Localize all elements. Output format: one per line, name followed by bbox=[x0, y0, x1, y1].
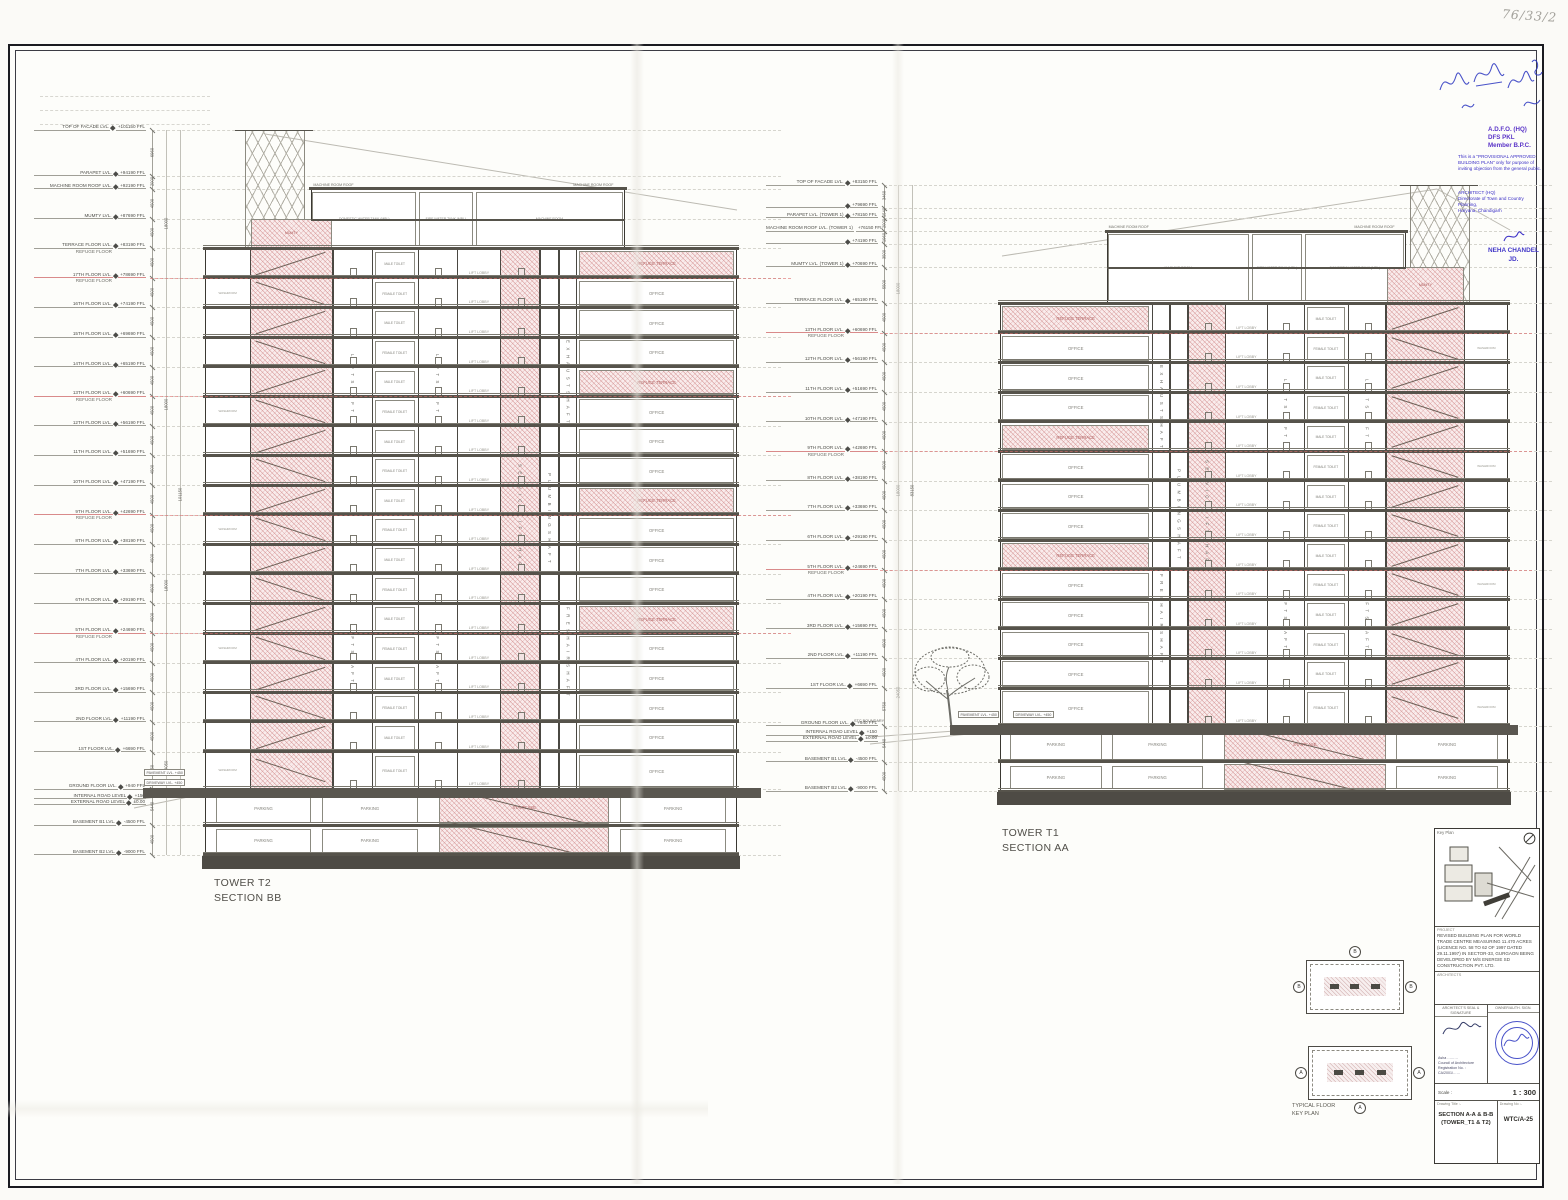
female-toilet-label: FEMALE TOILET bbox=[382, 469, 407, 473]
refuge-terrace-label: REFUGE TERRACE bbox=[1056, 316, 1095, 321]
level-marker bbox=[845, 446, 850, 451]
level-marker bbox=[845, 595, 850, 600]
approval-stamps: A.D.F.O. (HQ) DFS PKL Member B.P.C. This… bbox=[1436, 52, 1546, 292]
floor-slab bbox=[998, 598, 1510, 601]
level-line: TOP OF FACADE LVL.+83150 FFL bbox=[766, 179, 878, 186]
level-marker bbox=[117, 850, 122, 855]
office-cell: OFFICE bbox=[1002, 691, 1149, 725]
level-item: 3RD FLOOR LVL.+15690 FFL bbox=[34, 686, 146, 693]
parking-label: PARKING bbox=[254, 806, 273, 811]
office-label: OFFICE bbox=[1068, 583, 1083, 588]
floor-slab-line bbox=[203, 689, 739, 690]
pavement-label-t2: PAVEMENT LVL. +450 bbox=[144, 769, 185, 776]
level-item: 17TH FLOOR LVL.+78690 FFLREFUGE FLOOR bbox=[34, 272, 146, 284]
office-cell: OFFICE bbox=[579, 666, 734, 692]
level-item: 7TH FLOOR LVL.+33690 FFL bbox=[34, 568, 146, 575]
female-toilet-label: FEMALE TOILET bbox=[1314, 347, 1339, 351]
level-sublabel: REFUGE FLOOR bbox=[34, 634, 146, 639]
level-label: 13TH FLOOR LVL. bbox=[34, 390, 113, 397]
level-label: GROUND FLOOR LVL. bbox=[766, 720, 850, 727]
level-line: BASEMENT B1 LVL.-4500 FFL bbox=[34, 819, 146, 826]
lift-shaft-1: L I F T S H A F TL I F T S H A F T bbox=[1348, 303, 1386, 726]
toilet-cell: MALE TOILET bbox=[375, 548, 415, 572]
level-marker bbox=[113, 273, 118, 278]
level-label: 7TH FLOOR LVL. bbox=[766, 504, 845, 511]
level-item: TOP OF FACADE LVL.+83150 FFL bbox=[766, 179, 878, 186]
level-item: PARAPET LVL.+94190 FFL bbox=[34, 170, 146, 177]
refuge-terrace-label: REFUGE TERRACE bbox=[1056, 435, 1095, 440]
level-marker bbox=[846, 654, 851, 659]
caption-line: KEY PLAN bbox=[1292, 1110, 1335, 1118]
level-marker bbox=[115, 747, 120, 752]
office-cell: OFFICE bbox=[579, 547, 734, 573]
level-value: +33690 FFL bbox=[850, 504, 878, 511]
dim-value: 4500 bbox=[150, 368, 155, 394]
dim-value: 4500 bbox=[150, 427, 155, 453]
level-line: PARAPET LVL. (TOWER 1)+78150 FFL bbox=[766, 212, 878, 219]
floor-slab-line bbox=[998, 655, 1510, 656]
floor-slab-line bbox=[203, 630, 739, 631]
toilet-cell: FEMALE TOILET bbox=[1307, 337, 1345, 361]
refuge-terrace-label: REFUGE TERRACE bbox=[637, 617, 676, 622]
level-sublabel: REFUGE FLOOR bbox=[34, 515, 146, 520]
floor-slab-line bbox=[998, 359, 1510, 360]
floor-slab-line bbox=[998, 330, 1510, 331]
level-value: +87690 FFL bbox=[118, 213, 146, 220]
floor-slab bbox=[203, 720, 739, 723]
dim-value: 4500 bbox=[882, 660, 887, 686]
parking-label: PARKING bbox=[664, 806, 683, 811]
level-marker bbox=[845, 239, 850, 244]
dim-value: 4500 bbox=[150, 605, 155, 631]
level-line: MACHINE ROOM ROOF LVL. (TOWER 1)+76150 F… bbox=[766, 225, 878, 232]
level-line: GROUND FLOOR LVL.+940 FFL bbox=[34, 783, 146, 790]
level-value: +38190 FFL bbox=[850, 475, 878, 482]
floor-slab bbox=[998, 657, 1510, 660]
floor-slab-line bbox=[203, 600, 739, 601]
dim-value: 4500 bbox=[882, 393, 887, 419]
level-label: MUMTY LVL. bbox=[34, 213, 113, 220]
level-label: 2ND FLOOR LVL. bbox=[34, 716, 113, 723]
office-label: OFFICE bbox=[1068, 672, 1083, 677]
owner-sign-cell: OWNER/AUTH. SIGN. bbox=[1488, 1005, 1540, 1083]
level-value: +79690 FFL bbox=[850, 202, 878, 209]
dim-group-value: 18000 bbox=[896, 276, 901, 302]
typical-floor-plan bbox=[1306, 960, 1404, 1014]
dim-group-value: 18000 bbox=[896, 478, 901, 504]
toilet-cell: MALE TOILET bbox=[375, 607, 415, 631]
level-item: 5TH FLOOR LVL.+24690 FFLREFUGE FLOOR bbox=[34, 627, 146, 639]
level-item: +79690 FFL bbox=[766, 202, 878, 209]
female-toilet-label: FEMALE TOILET bbox=[382, 528, 407, 532]
level-marker bbox=[845, 298, 850, 303]
male-toilet-label: MALE TOILET bbox=[384, 380, 405, 384]
signatory-stamp: NEHA CHANDEL JD. bbox=[1488, 228, 1539, 264]
male-toilet-label: MALE TOILET bbox=[384, 677, 405, 681]
key-plan-map bbox=[1437, 839, 1537, 923]
toilet-cell: FEMALE TOILET bbox=[375, 400, 415, 424]
dim-value: 4500 bbox=[882, 423, 887, 449]
level-line: 3RD FLOOR LVL.+15690 FFL bbox=[766, 623, 878, 630]
refuge-terrace-label: REFUGE TERRACE bbox=[637, 261, 676, 266]
dim-value: 4500 bbox=[150, 309, 155, 335]
office-cell: OFFICE bbox=[1002, 395, 1149, 421]
dim-value: 4500 bbox=[150, 694, 155, 720]
refuge-level-line bbox=[880, 333, 1532, 334]
level-value: +92190 FFL bbox=[118, 183, 146, 190]
office-label: OFFICE bbox=[1068, 376, 1083, 381]
toilet-cell: MALE TOILET bbox=[1307, 307, 1345, 331]
dim-value: 4500 bbox=[150, 249, 155, 275]
exhaust-shaft: E X H A U S T S H A F TF R E S H A I R S… bbox=[559, 248, 578, 789]
plumbing-shaft: P L U M B I N G S H A F T bbox=[1170, 303, 1188, 726]
office-cell: OFFICE bbox=[579, 310, 734, 336]
level-line: 9TH FLOOR LVL.+42690 FFL bbox=[766, 445, 878, 452]
drawing-title-cell: Drawing Title :- SECTION A-A & B-B (TOWE… bbox=[1435, 1101, 1498, 1163]
level-label: 1ST FLOOR LVL. bbox=[766, 682, 847, 689]
parking-label: PARKING bbox=[361, 806, 380, 811]
level-line: 4TH FLOOR LVL.+20190 FFL bbox=[766, 593, 878, 600]
refuge-terrace-cell: REFUGE TERRACE bbox=[579, 606, 734, 632]
level-item: MUMTY LVL.+87690 FFL bbox=[34, 213, 146, 220]
floor-slab-line bbox=[203, 304, 739, 305]
level-value: +83190 FFL bbox=[118, 242, 146, 249]
male-toilet-label: MALE TOILET bbox=[1316, 495, 1337, 499]
floor-slab bbox=[998, 391, 1510, 394]
floor-slab-line bbox=[203, 786, 739, 787]
office-cell: OFFICE bbox=[579, 695, 734, 721]
level-value: +51690 FFL bbox=[850, 386, 878, 393]
drawing-title-label: Drawing Title :- bbox=[1435, 1101, 1497, 1107]
toilet-cell: MALE TOILET bbox=[1307, 603, 1345, 627]
level-value: +15690 FFL bbox=[118, 686, 146, 693]
refuge-level-line bbox=[150, 396, 791, 397]
level-label: 12TH FLOOR LVL. bbox=[34, 420, 113, 427]
level-marker bbox=[111, 125, 116, 130]
core-block bbox=[1334, 1070, 1343, 1075]
refuge-level-line bbox=[880, 570, 1532, 571]
level-marker bbox=[113, 332, 118, 337]
level-marker bbox=[847, 683, 852, 688]
level-label: 3RD FLOOR LVL. bbox=[766, 623, 845, 630]
dim-value: 4500 bbox=[150, 826, 155, 852]
top-of-facade-line bbox=[235, 130, 313, 131]
drawing-row: Drawing Title :- SECTION A-A & B-B (TOWE… bbox=[1435, 1101, 1539, 1163]
level-label: 1ST FLOOR LVL. bbox=[34, 746, 115, 753]
level-line: BASEMENT B2 LVL.-9000 FFL bbox=[766, 785, 878, 792]
level-label: 16TH FLOOR LVL. bbox=[34, 301, 113, 308]
toilet-cell: MALE TOILET bbox=[375, 371, 415, 395]
toilet-cell: MALE TOILET bbox=[1307, 366, 1345, 390]
office-cell: OFFICE bbox=[579, 577, 734, 603]
parking-label: PARKING bbox=[1148, 775, 1167, 780]
exhaust-shaft-label: E X H A U S T S H A F T bbox=[566, 340, 571, 424]
key-plan-label: Key Plan bbox=[1437, 830, 1454, 835]
dim-value: 4500 bbox=[150, 634, 155, 660]
mumty-label: MUMTY bbox=[1419, 283, 1432, 287]
level-item: 9TH FLOOR LVL.+42690 FFLREFUGE FLOOR bbox=[766, 445, 878, 457]
level-value: +6690 FFL bbox=[121, 746, 146, 753]
floor-slab-line bbox=[998, 419, 1510, 420]
floor-slab-line bbox=[203, 660, 739, 661]
floor-slab-line bbox=[998, 685, 1510, 686]
owner-stamp-icon bbox=[1495, 1021, 1539, 1065]
level-value: +74190 FFL bbox=[850, 238, 878, 245]
level-label: EXTERNAL ROAD LEVEL bbox=[34, 799, 126, 806]
level-item: 13TH FLOOR LVL.+60690 FFLREFUGE FLOOR bbox=[766, 327, 878, 339]
level-line: BASEMENT B1 LVL.-4500 FFL bbox=[766, 756, 878, 763]
level-item: 5TH FLOOR LVL.+24690 FFLREFUGE FLOOR bbox=[766, 564, 878, 576]
dim-value: 4500 bbox=[150, 546, 155, 572]
level-value: +38190 FFL bbox=[118, 538, 146, 545]
dim-value: 4500 bbox=[882, 601, 887, 627]
level-item: 8TH FLOOR LVL.+38190 FFL bbox=[34, 538, 146, 545]
level-line: 14TH FLOOR LVL.+65190 FFL bbox=[34, 361, 146, 368]
dim-value: 4500 bbox=[150, 723, 155, 749]
level-line: MACHINE ROOM ROOF LVL.+92190 FFL bbox=[34, 183, 146, 190]
toilet-cell: MALE TOILET bbox=[375, 667, 415, 691]
dim-value: 4500 bbox=[882, 482, 887, 508]
office-cell: OFFICE bbox=[1002, 365, 1149, 391]
level-marker bbox=[113, 599, 118, 604]
washroom-label: WASHROOM bbox=[1465, 582, 1508, 586]
level-label: BASEMENT B2 LVL. bbox=[766, 785, 848, 792]
level-line: 1ST FLOOR LVL.+6690 FFL bbox=[34, 746, 146, 753]
section-marker: B bbox=[1293, 981, 1305, 993]
level-value: +29190 FFL bbox=[118, 597, 146, 604]
level-line: +79690 FFL bbox=[766, 202, 878, 209]
dim-value: 4500 bbox=[882, 512, 887, 538]
machine-roof-label: MACHINE ROOM ROOF bbox=[313, 183, 353, 187]
parking-label: PARKING bbox=[361, 838, 380, 843]
level-value: ±0.00 bbox=[132, 799, 146, 806]
floor-slab bbox=[203, 336, 739, 339]
level-label: 3RD FLOOR LVL. bbox=[34, 686, 113, 693]
dim-value: 4500 bbox=[882, 334, 887, 360]
refuge-terrace-cell: REFUGE TERRACE bbox=[579, 370, 734, 396]
level-label: BASEMENT B1 LVL. bbox=[766, 756, 848, 763]
level-label: 6TH FLOOR LVL. bbox=[766, 534, 845, 541]
level-label: GROUND FLOOR LVL. bbox=[34, 783, 118, 790]
drawing-number-label: Drawing No :- bbox=[1498, 1101, 1539, 1107]
male-toilet-label: MALE TOILET bbox=[384, 440, 405, 444]
level-value: +51690 FFL bbox=[118, 449, 146, 456]
washroom-label: WASHROOM bbox=[1465, 705, 1508, 709]
drawing-sheet: 76/33/2 PAVEMENT LVL. +450 bbox=[0, 0, 1568, 1200]
level-label: MACHINE ROOM ROOF LVL. bbox=[34, 183, 113, 190]
office-label: OFFICE bbox=[649, 528, 664, 533]
drawing-number: WTC/A-25 bbox=[1498, 1116, 1539, 1123]
level-value: +20190 FFL bbox=[850, 593, 878, 600]
level-item: BASEMENT B2 LVL.-9000 FFL bbox=[34, 849, 146, 856]
refuge-terrace-cell: REFUGE TERRACE bbox=[1002, 425, 1149, 451]
core-block bbox=[1371, 984, 1380, 989]
architect-seal-cell: ARCHITECT'S SEAL & SIGNATURE Asha ……… Co… bbox=[1435, 1005, 1488, 1083]
level-item: 11TH FLOOR LVL.+51690 FFL bbox=[34, 449, 146, 456]
office-cell: OFFICE bbox=[579, 725, 734, 751]
floor-slab-line bbox=[203, 749, 739, 750]
parking-label: PARKING bbox=[1148, 742, 1167, 747]
level-marker bbox=[845, 262, 850, 267]
level-value: +56190 FFL bbox=[118, 420, 146, 427]
floor-slab-line bbox=[203, 334, 739, 335]
level-label: 15TH FLOOR LVL. bbox=[34, 331, 113, 338]
service-lift-shaft: S E R V I C E L I F T S H A F T bbox=[1188, 303, 1226, 726]
floor-slab bbox=[203, 750, 739, 753]
dim-value: 4500 bbox=[150, 457, 155, 483]
level-line: 2ND FLOOR LVL.+11190 FFL bbox=[34, 716, 146, 723]
floor-slab bbox=[998, 539, 1510, 542]
level-line: 2ND FLOOR LVL.+11190 FFL bbox=[766, 652, 878, 659]
machine-roof-slab bbox=[1105, 230, 1409, 233]
level-value: -9000 FFL bbox=[122, 849, 146, 856]
refuge-terrace-label: REFUGE TERRACE bbox=[637, 380, 676, 385]
dim-value: 4500 bbox=[882, 304, 887, 330]
female-toilet-label: FEMALE TOILET bbox=[382, 647, 407, 651]
toilet-cell: FEMALE TOILET bbox=[375, 696, 415, 720]
floor-slab bbox=[998, 302, 1510, 305]
office-cell: OFFICE bbox=[1002, 632, 1149, 658]
female-toilet-label: FEMALE TOILET bbox=[382, 706, 407, 710]
level-marker bbox=[845, 203, 850, 208]
level-item: 8TH FLOOR LVL.+38190 FFL bbox=[766, 475, 878, 482]
dim-value: 4500 bbox=[882, 364, 887, 390]
level-value: +83150 FFL bbox=[850, 179, 878, 186]
level-line: TOP OF FACADE LVL.+101150 FFL bbox=[34, 124, 146, 131]
office-cell: OFFICE bbox=[579, 429, 734, 455]
level-marker bbox=[113, 480, 118, 485]
floor-slab bbox=[203, 306, 739, 309]
floor-slab-line bbox=[998, 537, 1510, 538]
section-marker: B bbox=[1405, 981, 1417, 993]
exhaust-shaft-label: F R E S H A I R S H A F T bbox=[566, 607, 571, 697]
toilet-cell: FEMALE TOILET bbox=[375, 756, 415, 788]
office-cell: OFFICE bbox=[579, 755, 734, 789]
parking-cell: PARKING bbox=[1112, 766, 1203, 790]
dim-value: 4500 bbox=[150, 338, 155, 364]
refuge-terrace-cell: REFUGE TERRACE bbox=[579, 488, 734, 514]
level-marker bbox=[845, 624, 850, 629]
project-description: REVISED BUILDING PLAN FOR WORLD TRADE CE… bbox=[1437, 933, 1537, 969]
male-toilet-label: MALE TOILET bbox=[384, 321, 405, 325]
floor-slab bbox=[203, 424, 739, 427]
level-item: MACHINE ROOM ROOF LVL. (TOWER 1)+76150 F… bbox=[766, 225, 878, 232]
dim-group-value: 24050 bbox=[896, 680, 901, 706]
washroom-label: WASHROOM bbox=[205, 527, 250, 531]
pavement-label: PAVEMENT LVL. +450 bbox=[958, 711, 999, 718]
dim-group-value: 18000 bbox=[164, 391, 169, 417]
level-marker bbox=[113, 184, 118, 189]
level-item: BASEMENT B1 LVL.-4500 FFL bbox=[766, 756, 878, 763]
owner-sign-label: OWNER/AUTH. SIGN. bbox=[1488, 1005, 1540, 1012]
level-item: 7TH FLOOR LVL.+33690 FFL bbox=[766, 504, 878, 511]
floor-slab-line bbox=[203, 423, 739, 424]
floor-slab bbox=[203, 661, 739, 664]
level-item: 6TH FLOOR LVL.+29190 FFL bbox=[766, 534, 878, 541]
level-item: TERRACE FLOOR LVL.+83190 FFLREFUGE FLOOR bbox=[34, 242, 146, 254]
level-marker bbox=[845, 328, 850, 333]
floor-slab-line bbox=[998, 478, 1510, 479]
level-value: +74190 FFL bbox=[118, 301, 146, 308]
toilet-cell: MALE TOILET bbox=[1307, 485, 1345, 509]
level-line: 3RD FLOOR LVL.+15690 FFL bbox=[34, 686, 146, 693]
office-cell: OFFICE bbox=[1002, 513, 1149, 539]
male-toilet-label: MALE TOILET bbox=[384, 558, 405, 562]
female-toilet-label: FEMALE TOILET bbox=[1314, 524, 1339, 528]
dim-value: 4500 bbox=[150, 279, 155, 305]
female-toilet-label: FEMALE TOILET bbox=[382, 351, 407, 355]
level-label: MUMTY LVL. (TOWER 1) bbox=[766, 261, 845, 268]
office-cell: OFFICE bbox=[579, 636, 734, 662]
caption-line: TYPICAL FLOOR bbox=[1292, 1102, 1335, 1110]
guide-line bbox=[40, 96, 210, 97]
refuge-level-line bbox=[150, 633, 791, 634]
level-line: +74190 FFL bbox=[766, 238, 878, 245]
office-label: OFFICE bbox=[649, 439, 664, 444]
dim-total-value: 101150 bbox=[178, 482, 183, 508]
level-line: 5TH FLOOR LVL.+24690 FFL bbox=[34, 627, 146, 634]
level-line: 7TH FLOOR LVL.+33690 FFL bbox=[34, 568, 146, 575]
level-line: 16TH FLOOR LVL.+74190 FFL bbox=[34, 301, 146, 308]
level-marker bbox=[113, 171, 118, 176]
level-marker bbox=[849, 757, 854, 762]
level-label: 7TH FLOOR LVL. bbox=[34, 568, 113, 575]
level-marker bbox=[845, 476, 850, 481]
female-toilet-label: FEMALE TOILET bbox=[1314, 406, 1339, 410]
floor-slab-line bbox=[203, 275, 739, 276]
tower-title: TOWER T1SECTION AA bbox=[1002, 826, 1069, 855]
level-label: 8TH FLOOR LVL. bbox=[34, 538, 113, 545]
washroom-label: WASHROOM bbox=[205, 768, 250, 772]
office-label: OFFICE bbox=[649, 706, 664, 711]
level-marker bbox=[113, 510, 118, 515]
mumty-slab bbox=[311, 219, 625, 221]
floor-slab-line bbox=[998, 389, 1510, 390]
level-item: 16TH FLOOR LVL.+74190 FFL bbox=[34, 301, 146, 308]
level-sublabel: REFUGE FLOOR bbox=[766, 570, 878, 575]
level-label: 4TH FLOOR LVL. bbox=[34, 657, 113, 664]
level-item: 13TH FLOOR LVL.+60690 FFLREFUGE FLOOR bbox=[34, 390, 146, 402]
level-item: 10TH FLOOR LVL.+47190 FFL bbox=[766, 416, 878, 423]
washroom-label: WASHROOM bbox=[205, 291, 250, 295]
level-value: +24690 FFL bbox=[850, 564, 878, 571]
level-line: 4TH FLOOR LVL.+20190 FFL bbox=[34, 657, 146, 664]
refuge-terrace-cell: REFUGE TERRACE bbox=[1002, 543, 1149, 569]
level-value: +101150 FFL bbox=[116, 124, 146, 131]
floor-slab-line bbox=[203, 482, 739, 483]
refuge-terrace-label: REFUGE TERRACE bbox=[1056, 553, 1095, 558]
level-sublabel: REFUGE FLOOR bbox=[34, 278, 146, 283]
level-label: TERRACE FLOOR LVL. bbox=[34, 242, 113, 249]
level-value: +56190 FFL bbox=[850, 356, 878, 363]
dim-value: 3500 bbox=[882, 242, 887, 268]
dim-value: 4500 bbox=[150, 516, 155, 542]
floor-slab-line bbox=[203, 452, 739, 453]
level-line: 13TH FLOOR LVL.+60690 FFL bbox=[34, 390, 146, 397]
office-cell: OFFICE bbox=[1002, 602, 1149, 628]
level-marker bbox=[118, 785, 123, 790]
level-label: 4TH FLOOR LVL. bbox=[766, 593, 845, 600]
level-value: +76150 FFL bbox=[856, 225, 884, 232]
level-item: 2ND FLOOR LVL.+11190 FFL bbox=[766, 652, 878, 659]
floor-slab bbox=[203, 824, 739, 827]
dim-value: 4500 bbox=[882, 541, 887, 567]
tower-name: TOWER T1 bbox=[1002, 826, 1069, 841]
level-value: +20190 FFL bbox=[118, 657, 146, 664]
level-item: 12TH FLOOR LVL.+56190 FFL bbox=[34, 420, 146, 427]
level-value: +15690 FFL bbox=[850, 623, 878, 630]
office-label: OFFICE bbox=[1068, 405, 1083, 410]
